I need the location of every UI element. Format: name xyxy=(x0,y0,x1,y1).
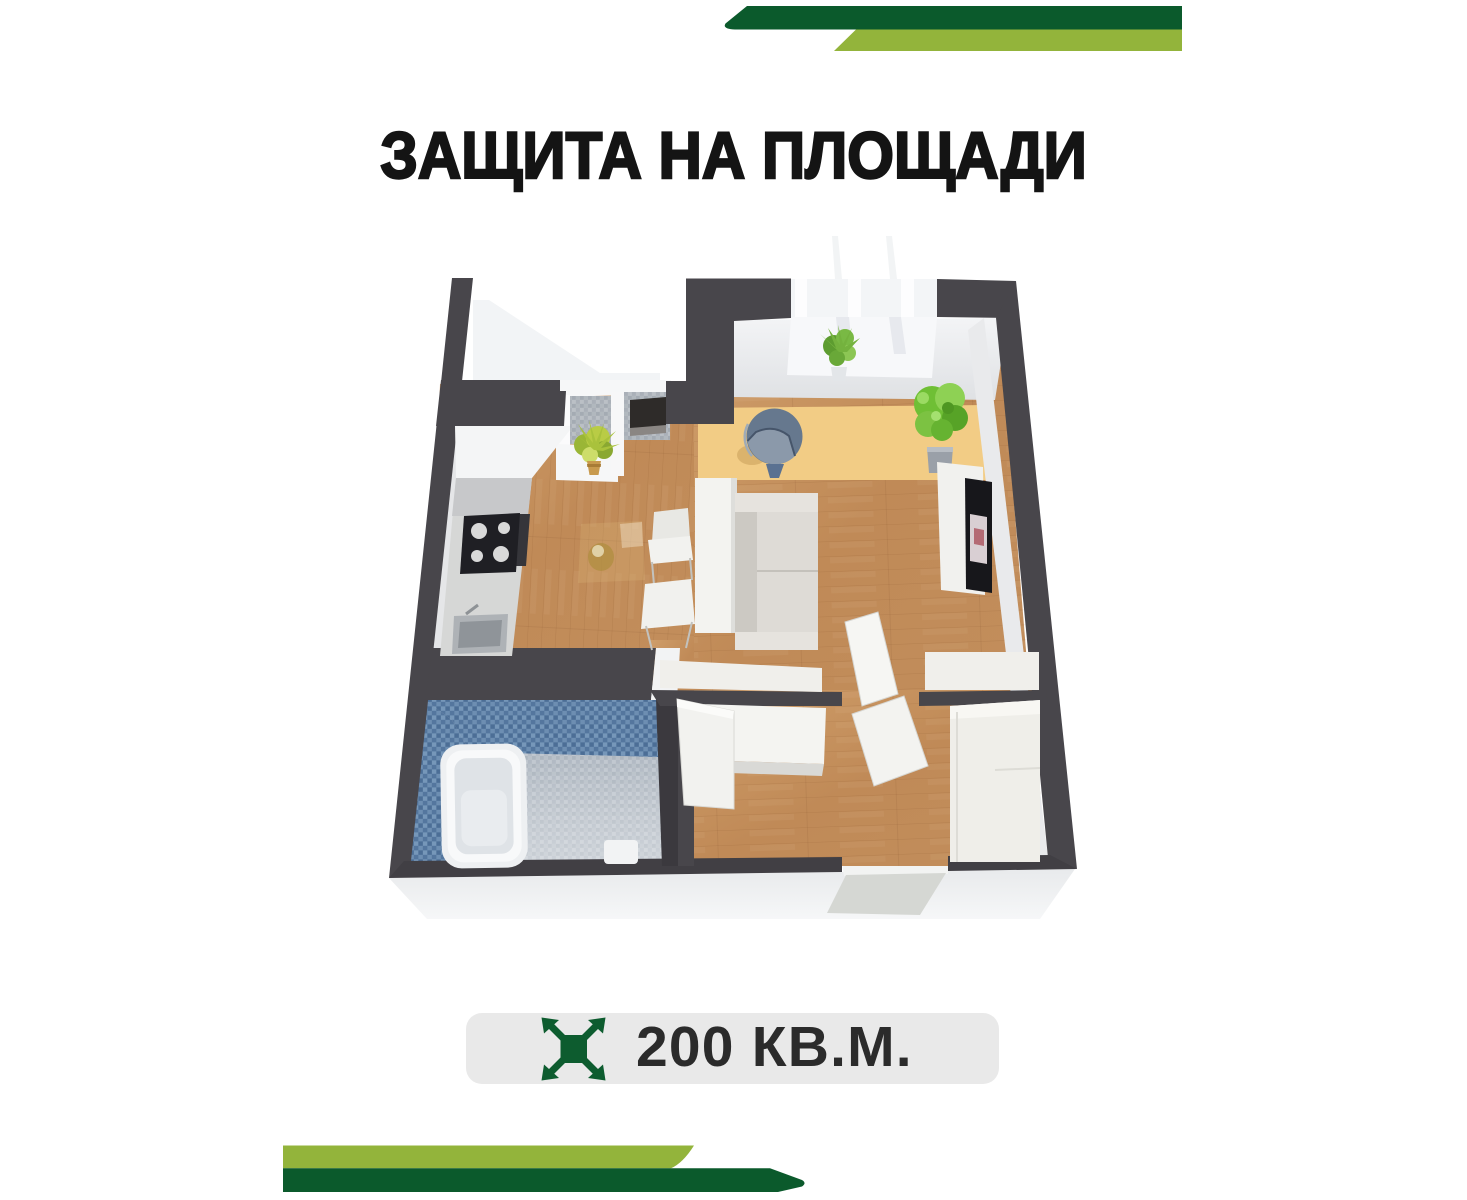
svg-text:200 КВ.М.: 200 КВ.М. xyxy=(636,1015,913,1079)
